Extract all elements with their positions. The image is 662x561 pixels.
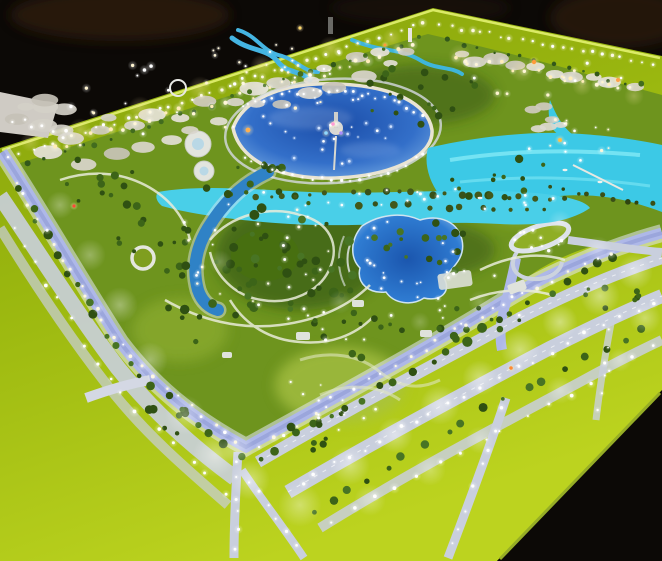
light-dot — [309, 74, 312, 77]
light-dot — [608, 370, 610, 372]
tree — [388, 65, 395, 72]
light-dot — [69, 268, 72, 271]
tree — [111, 171, 119, 179]
light-dot — [531, 229, 534, 232]
glow-patch — [624, 86, 644, 106]
cabana — [509, 208, 513, 212]
light-dot — [314, 97, 316, 99]
tree — [581, 267, 588, 274]
tree — [507, 311, 512, 316]
tree — [561, 187, 564, 190]
light-dot — [252, 97, 254, 99]
light-dot — [274, 69, 276, 71]
tree — [110, 138, 113, 141]
accent-light — [298, 26, 301, 29]
tree — [600, 192, 605, 197]
light-dot — [17, 153, 19, 155]
light-dot — [196, 282, 198, 284]
light-dot — [53, 144, 57, 148]
light-dot — [419, 192, 422, 195]
tree — [351, 310, 357, 316]
building-blob — [351, 70, 376, 82]
light-dot — [384, 96, 386, 98]
tree — [518, 54, 522, 58]
light-dot — [208, 92, 210, 94]
light-dot — [254, 75, 257, 78]
glow-patch — [20, 132, 40, 152]
light-dot — [53, 243, 56, 246]
light-dot — [630, 355, 634, 359]
tree — [388, 243, 392, 247]
accent-light — [384, 44, 387, 47]
light-dot — [511, 69, 514, 72]
cabana — [355, 202, 363, 210]
light-dot — [261, 75, 264, 78]
light-dot — [324, 53, 327, 56]
cabana — [562, 196, 567, 201]
light-dot — [24, 245, 26, 247]
tree — [564, 278, 572, 286]
light-dot — [581, 80, 584, 83]
light-dot — [541, 245, 543, 247]
light-dot — [280, 69, 283, 72]
accent-light — [509, 366, 513, 370]
light-dot — [496, 91, 499, 94]
light-dot — [324, 338, 327, 341]
light-dot — [302, 482, 305, 485]
light-dot — [323, 68, 325, 70]
light-dot — [365, 122, 367, 124]
light-dot — [442, 317, 444, 319]
tree — [244, 190, 248, 194]
light-dot — [233, 82, 236, 85]
tree — [493, 52, 495, 54]
light-dot — [549, 75, 553, 79]
light-dot — [46, 229, 49, 232]
tree — [208, 299, 217, 308]
light-dot — [522, 38, 524, 40]
tree — [112, 342, 119, 349]
light-dot — [148, 111, 151, 114]
tree — [634, 201, 638, 205]
tree — [343, 486, 351, 494]
light-dot — [289, 91, 291, 93]
tree — [229, 243, 238, 252]
light-dot — [524, 194, 527, 197]
light-dot — [282, 244, 285, 247]
light-dot — [415, 421, 418, 424]
light-dot — [293, 157, 296, 160]
building-blob — [181, 126, 198, 134]
light-dot — [286, 236, 289, 239]
light-dot — [127, 116, 130, 119]
light-dot — [7, 156, 9, 158]
light-dot — [237, 528, 240, 531]
tree — [259, 236, 264, 241]
light-dot — [96, 362, 99, 365]
light-dot — [342, 399, 344, 401]
light-dot — [91, 111, 93, 113]
light-dot — [393, 99, 395, 101]
light-dot — [250, 160, 252, 162]
tree — [501, 175, 505, 179]
light-dot — [608, 147, 610, 149]
light-dot — [478, 386, 481, 389]
light-dot — [452, 542, 454, 544]
light-dot — [381, 204, 383, 206]
light-dot — [229, 85, 232, 88]
light-dot — [327, 90, 330, 93]
light-dot — [30, 126, 33, 129]
tree — [328, 266, 335, 273]
light-dot — [100, 319, 103, 322]
cabana — [308, 193, 311, 196]
light-dot — [288, 286, 291, 289]
scene-svg — [0, 0, 662, 561]
light-dot — [601, 392, 603, 394]
tree — [336, 258, 345, 267]
glow-patch — [132, 342, 168, 378]
light-dot — [314, 57, 317, 60]
building-blob — [535, 102, 552, 110]
tree — [493, 173, 496, 176]
light-dot — [149, 64, 153, 68]
light-dot — [473, 77, 476, 80]
light-dot — [119, 391, 121, 393]
glow-patch — [377, 417, 413, 453]
light-dot — [582, 50, 585, 53]
light-dot — [285, 131, 287, 133]
light-dot — [102, 123, 105, 126]
light-dot — [214, 229, 217, 232]
tree — [442, 235, 447, 240]
light-dot — [620, 77, 623, 80]
light-dot — [551, 45, 554, 48]
light-dot — [437, 297, 440, 300]
light-dot — [177, 395, 179, 397]
light-dot — [567, 270, 569, 272]
light-dot — [471, 484, 474, 487]
light-dot — [143, 68, 147, 72]
light-dot — [328, 70, 330, 72]
tree — [359, 398, 366, 405]
light-dot — [412, 111, 415, 114]
tree — [584, 192, 589, 197]
light-dot — [235, 476, 237, 478]
tree — [460, 230, 467, 237]
tree — [132, 249, 136, 253]
cabana — [390, 201, 398, 209]
light-dot — [294, 77, 296, 79]
tree — [454, 306, 459, 311]
light-dot — [367, 93, 369, 95]
light-dot — [502, 304, 504, 306]
tree — [548, 185, 552, 189]
light-dot — [596, 409, 598, 411]
light-dot — [439, 309, 441, 311]
accent-light — [246, 128, 251, 133]
light-dot — [364, 450, 366, 452]
glow-patch — [468, 290, 492, 314]
light-dot — [151, 375, 155, 379]
tree — [25, 160, 31, 166]
tree — [404, 255, 408, 259]
light-dot — [521, 292, 523, 294]
light-dot — [366, 59, 370, 63]
light-dot — [609, 252, 612, 255]
light-dot — [353, 506, 357, 510]
light-dot — [217, 47, 219, 49]
accent-light — [532, 60, 536, 64]
light-dot — [83, 345, 86, 348]
tree — [394, 111, 399, 116]
light-dot — [454, 56, 458, 60]
light-dot — [406, 200, 408, 202]
tree — [330, 496, 338, 504]
light-dot — [234, 440, 237, 443]
light-dot — [603, 361, 606, 364]
light-dot — [551, 281, 554, 284]
tree — [501, 397, 505, 401]
boat — [598, 181, 603, 183]
light-dot — [436, 195, 439, 198]
light-dot — [297, 64, 300, 67]
tree — [344, 236, 353, 245]
light-dot — [85, 87, 88, 90]
light-dot — [357, 98, 359, 100]
light-dot — [584, 263, 586, 265]
tree — [462, 337, 472, 347]
glow-patch — [500, 330, 540, 370]
tree — [366, 80, 373, 87]
light-dot — [257, 223, 259, 225]
light-dot — [558, 244, 560, 246]
tree — [249, 278, 257, 286]
light-dot — [136, 75, 138, 77]
light-dot — [11, 121, 13, 123]
light-dot — [296, 208, 299, 211]
glow-patch — [414, 454, 446, 486]
light-dot — [285, 104, 288, 107]
boat — [478, 197, 483, 199]
light-dot — [567, 342, 570, 345]
tree — [349, 350, 357, 358]
tree — [432, 359, 437, 364]
light-dot — [291, 173, 294, 176]
light-dot — [296, 425, 298, 427]
light-dot — [242, 105, 244, 107]
light-dot — [322, 311, 325, 314]
light-dot — [225, 493, 228, 496]
light-dot — [33, 149, 35, 151]
light-dot — [433, 339, 436, 342]
light-dot — [390, 125, 393, 128]
light-dot — [268, 504, 270, 506]
light-dot — [36, 218, 38, 220]
light-dot — [275, 518, 277, 520]
light-dot — [307, 216, 309, 218]
light-dot — [378, 37, 381, 40]
tree — [250, 232, 255, 237]
light-dot — [338, 429, 340, 431]
light-dot — [511, 295, 514, 298]
light-dot — [112, 336, 115, 339]
light-dot — [212, 244, 214, 246]
light-dot — [652, 344, 655, 347]
light-dot — [373, 494, 377, 498]
light-dot — [81, 285, 83, 287]
light-dot — [142, 132, 145, 135]
light-dot — [121, 128, 125, 132]
tree — [302, 258, 308, 264]
light-dot — [396, 170, 398, 172]
light-dot — [363, 339, 365, 341]
light-dot — [535, 287, 539, 291]
cabana — [446, 205, 454, 213]
light-dot — [284, 66, 286, 68]
tree — [611, 197, 616, 202]
light-dot — [519, 231, 522, 234]
light-dot — [425, 350, 428, 353]
accent-light — [558, 138, 562, 142]
light-dot — [269, 122, 271, 124]
tree — [197, 314, 203, 320]
light-dot — [70, 134, 73, 137]
light-dot — [270, 97, 273, 100]
light-dot — [571, 48, 573, 50]
tree — [244, 293, 251, 300]
light-dot — [258, 446, 260, 448]
tree — [65, 182, 69, 186]
tree — [442, 74, 449, 81]
tree — [232, 312, 239, 319]
light-dot — [442, 242, 444, 244]
light-dot — [159, 107, 162, 110]
light-dot — [356, 42, 358, 44]
light-dot — [444, 305, 446, 307]
light-dot — [16, 182, 18, 184]
light-dot — [113, 124, 115, 126]
light-dot — [378, 55, 382, 59]
light-dot — [500, 406, 504, 410]
light-dot — [586, 62, 589, 65]
light-dot — [69, 105, 72, 108]
cabana — [459, 191, 466, 198]
light-dot — [346, 133, 349, 136]
tree — [418, 84, 424, 90]
glow-patch — [188, 76, 212, 100]
light-dot — [351, 126, 352, 127]
light-dot — [294, 106, 297, 109]
tree — [359, 322, 363, 326]
light-dot — [549, 145, 551, 147]
light-dot — [498, 430, 500, 432]
light-dot — [563, 142, 566, 145]
light-dot — [423, 198, 426, 201]
light-dot — [373, 264, 375, 266]
light-dot — [352, 388, 355, 391]
light-dot — [498, 376, 500, 378]
cabana — [351, 190, 356, 195]
light-dot — [507, 37, 510, 40]
light-dot — [597, 258, 599, 260]
light-dot — [547, 249, 550, 252]
glow-patch — [542, 304, 578, 340]
light-dot — [386, 221, 388, 223]
tree — [496, 316, 503, 323]
tree — [298, 216, 306, 224]
tree — [502, 194, 508, 200]
glow-patch — [328, 290, 352, 314]
light-dot — [465, 62, 468, 65]
light-dot — [481, 316, 484, 319]
light-dot — [241, 82, 244, 85]
light-dot — [395, 365, 397, 367]
light-dot — [380, 287, 382, 289]
light-dot — [439, 460, 442, 463]
light-dot — [367, 237, 369, 239]
light-dot — [44, 284, 48, 288]
tree — [184, 227, 191, 234]
light-dot — [148, 119, 152, 123]
light-dot — [361, 94, 364, 97]
light-dot — [302, 393, 304, 395]
tree — [436, 326, 441, 331]
light-dot — [313, 89, 315, 91]
light-dot — [191, 99, 193, 101]
glow-patch — [462, 360, 498, 396]
tree — [382, 70, 389, 77]
light-dot — [245, 65, 247, 67]
light-dot — [340, 179, 343, 182]
light-dot — [203, 472, 206, 475]
cabana — [443, 191, 447, 195]
accent-light — [339, 131, 343, 135]
light-dot — [464, 323, 467, 326]
light-dot — [539, 236, 542, 239]
light-dot — [523, 201, 525, 203]
light-dot — [528, 147, 531, 150]
light-dot — [305, 273, 307, 275]
light-dot — [167, 106, 170, 109]
light-dot — [652, 63, 655, 66]
light-dot — [523, 231, 526, 234]
light-dot — [500, 60, 504, 64]
tree — [251, 254, 260, 263]
light-dot — [297, 225, 300, 228]
light-dot — [591, 50, 594, 53]
light-dot — [223, 101, 227, 105]
light-dot — [237, 510, 239, 512]
light-dot — [201, 266, 204, 269]
glow-patch — [165, 395, 205, 435]
accent-light — [616, 78, 620, 82]
light-dot — [618, 315, 621, 318]
glow-patch — [68, 118, 92, 142]
light-dot — [484, 208, 486, 210]
light-dot — [197, 271, 199, 273]
light-dot — [336, 89, 338, 91]
light-dot — [463, 396, 466, 399]
light-dot — [582, 330, 586, 334]
light-dot — [608, 328, 610, 330]
tree — [276, 165, 280, 169]
light-dot — [321, 148, 323, 150]
light-dot — [320, 384, 321, 385]
tree — [507, 53, 510, 56]
light-dot — [405, 107, 408, 110]
light-dot — [607, 83, 611, 87]
